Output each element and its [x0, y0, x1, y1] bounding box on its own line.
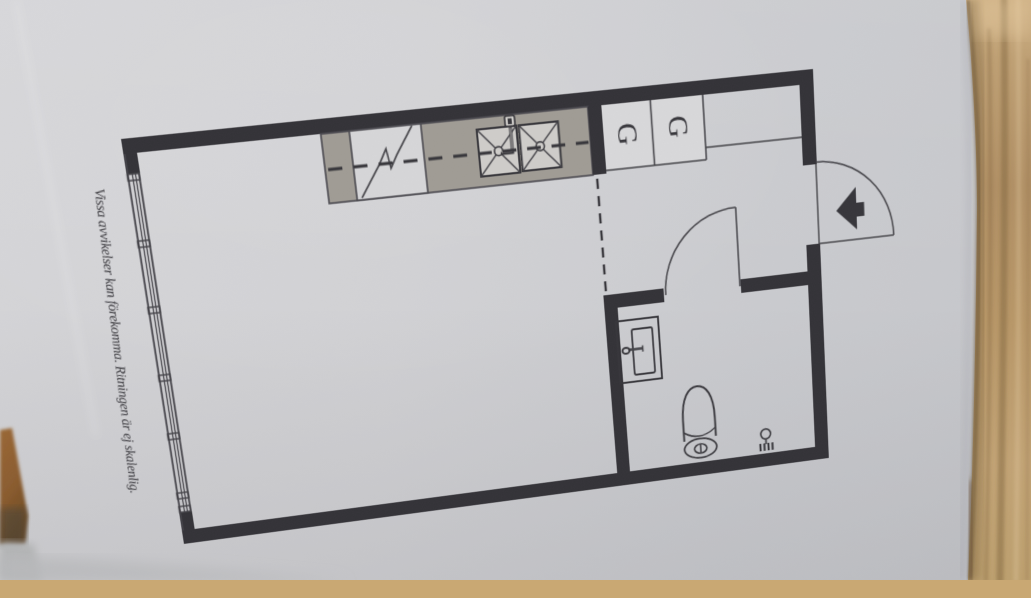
- svg-text:Vissa avvikelser kan förekomma: Vissa avvikelser kan förekomma. Ritninge…: [91, 188, 142, 494]
- svg-text:G: G: [611, 121, 644, 146]
- svg-text:G: G: [662, 114, 695, 139]
